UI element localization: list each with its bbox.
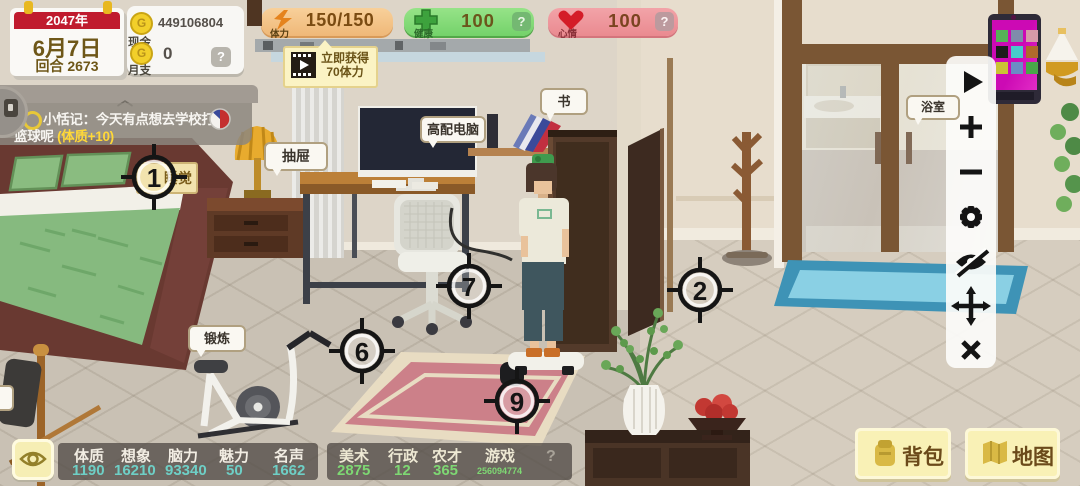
svg-text:1: 1: [147, 163, 161, 193]
svg-text:9: 9: [510, 387, 524, 417]
svg-text:7: 7: [462, 272, 476, 302]
svg-text:2: 2: [693, 276, 707, 306]
svg-text:6: 6: [355, 337, 369, 367]
